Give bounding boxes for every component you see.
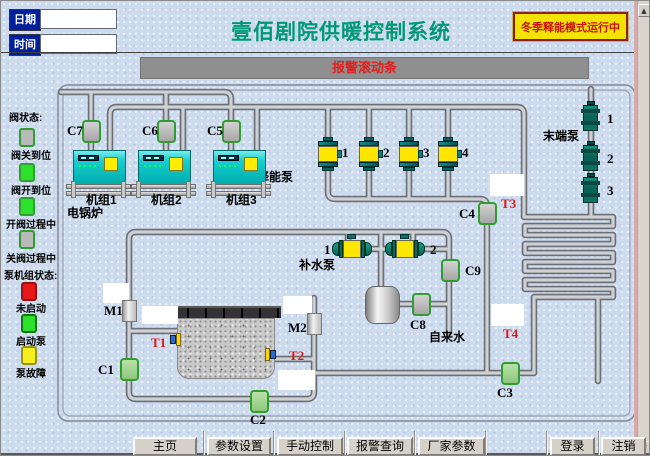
unit-display-tick [154,157,159,159]
makeup-pump-1[interactable] [343,240,361,258]
footer-divider [203,431,205,456]
unit-lamp-1 [104,157,118,171]
valve-C1[interactable] [120,358,139,381]
sensor-tip [265,348,270,361]
footer-divider [485,431,487,456]
legend-valve-state-label-1: 阀关到位 [1,147,61,162]
unit-indicator-dot [144,165,146,167]
legend-pump-state-label-1: 未启动 [1,300,61,315]
legend-valve-state-label-2: 阀开到位 [1,182,61,197]
value-display-box-4 [278,370,315,390]
end-pump-band [581,193,600,197]
nav-button-home[interactable]: 主页 [133,437,197,456]
date-label: 日期 [9,9,41,31]
unit-indicator-dot [154,165,156,167]
unit-base-tab [186,181,191,198]
end-pump-number: 2 [607,152,614,165]
legend-valve-title: 阀状态: [9,109,42,124]
valve-C5[interactable] [222,120,241,143]
end-pump-band [581,109,600,113]
release-pump-cap [403,167,415,171]
tap-water-label: 自来水 [429,331,465,343]
sensor-tip [176,333,181,346]
unit-label-2: 机组2 [151,194,182,206]
boiler-unit-2[interactable] [138,150,191,185]
release-pump-number: 4 [462,146,469,159]
boiler-unit-1[interactable] [73,150,126,185]
unit-indicator-dot [234,165,236,167]
valve-label-C9: C9 [465,264,481,277]
release-pump-number: 2 [383,146,390,159]
nav-button-parameters[interactable]: 参数设置 [207,437,271,456]
unit-indicator-dot [229,165,231,167]
makeup-pump-number: 2 [430,243,437,256]
unit-base-tab [136,181,141,198]
end-pump-band [581,149,600,153]
unit-label-1: 机组1 [86,194,117,206]
makeup-pump-2[interactable] [396,240,414,258]
valve-label-C4: C4 [459,207,475,220]
temp-sensor-T1 [170,333,181,346]
legend-valve-state-label-3: 开阀过程中 [1,216,61,231]
legend-valve-state-swatch-2 [19,163,35,182]
legend-pump-state-label-3: 泵故障 [1,365,61,380]
makeup-pumps-label: 补水泵 [299,259,335,271]
makeup-pump-nub [347,234,356,239]
unit-indicator-dot [79,165,81,167]
end-pump-band [581,121,600,125]
unit-display-1 [78,155,99,161]
release-pump-cap [442,167,454,171]
temp-label-T2: T2 [289,349,304,362]
boiler-unit-3[interactable] [213,150,266,185]
makeup-pump-cap [332,242,339,256]
scrollbar-up-icon[interactable]: ▲ [638,4,650,17]
legend-valve-state-label-4: 关阀过程中 [1,250,61,265]
unit-lamp-3 [244,157,258,171]
valve-C7[interactable] [82,120,101,143]
value-display-box-3 [283,296,312,314]
unit-indicator-dot [94,165,96,167]
time-input[interactable] [40,34,117,54]
legend-pump-state-swatch-2 [21,314,37,333]
unit-display-3 [218,155,239,161]
unit-base-tab [121,181,126,198]
unit-display-tick [81,157,86,159]
legend-pump-state-swatch-3 [21,346,37,365]
end-pumps-label: 末端泵 [543,130,579,142]
release-pump-3[interactable] [399,146,419,162]
unit-indicator-dot [224,165,226,167]
temp-label-T3: T3 [501,197,516,210]
value-display-box-5 [490,174,524,196]
release-pump-number: 3 [423,146,430,159]
temp-label-T1: T1 [151,336,166,349]
valve-label-C1: C1 [98,363,114,376]
end-pump-band [581,161,600,165]
footer-divider [344,431,346,456]
boiler-group-label: 电锅炉 [67,207,103,219]
unit-base-tab [261,181,266,198]
unit-lamp-2 [169,157,183,171]
storage-tank-lid [171,306,281,318]
flow-meter-label-M1: M1 [104,304,123,317]
logout-button[interactable]: 注销 [601,437,646,456]
value-display-box-6 [491,304,524,326]
hmi-window: 日期 时间 壹佰剧院供暖控制系统 冬季释能模式运行中 报警滚动条 阀状态: 泵机… [0,0,650,456]
end-pump-number: 3 [607,184,614,197]
storage-tank [177,318,275,379]
valve-label-C7: C7 [67,124,83,137]
footer-divider [273,431,275,456]
legend-pump-state-swatch-1 [21,282,37,301]
valve-label-C2: C2 [250,413,266,426]
flow-meter-M1[interactable] [122,300,137,322]
header-separator [1,52,650,53]
release-pump-cap [363,167,375,171]
flow-meter-M2[interactable] [307,313,322,335]
unit-indicator-dot [219,165,221,167]
valve-label-C5: C5 [207,124,223,137]
unit-base-tab [71,181,76,198]
valve-label-C8: C8 [410,318,426,331]
date-input[interactable] [40,9,117,29]
valve-C3[interactable] [501,362,520,385]
unit-display-tick [146,157,151,159]
unit-display-tick [229,157,234,159]
release-pump-1[interactable] [318,146,338,162]
valve-label-C6: C6 [142,124,158,137]
legend-valve-state-swatch-1 [19,128,35,147]
unit-indicator-dot [149,165,151,167]
flow-meter-label-M2: M2 [288,321,307,334]
legend-valve-state-swatch-4 [19,230,35,249]
unit-display-tick [221,157,226,159]
nav-button-factory-params[interactable]: 厂家参数 [418,437,485,456]
page-title: 壹佰剧院供暖控制系统 [226,16,456,46]
makeup-pump-cap [385,242,392,256]
sensor-body [270,350,276,359]
makeup-pump-nub [400,234,409,239]
unit-label-3: 机组3 [226,194,257,206]
unit-indicator-dot [159,165,161,167]
mode-status-button[interactable]: 冬季释能模式运行中 [513,12,628,41]
unit-base-tab [211,181,216,198]
makeup-water-tank [365,286,400,324]
unit-display-2 [143,155,164,161]
footer-divider [598,431,600,456]
temp-label-T4: T4 [503,327,518,340]
footer-divider [414,431,416,456]
legend-valve-state-swatch-3 [19,197,35,216]
release-pump-4[interactable] [438,146,458,162]
nav-button-manual-control[interactable]: 手动控制 [277,437,343,456]
release-pump-number: 1 [342,146,349,159]
valve-label-C3: C3 [497,386,513,399]
valve-C8[interactable] [412,293,431,316]
legend-pump-title: 泵机组状态: [4,267,57,282]
temp-sensor-T2 [265,348,276,361]
valve-C6[interactable] [157,120,176,143]
value-display-box-2 [142,306,178,324]
alarm-scroll-bar: 报警滚动条 [140,57,589,79]
end-pump-number: 1 [607,112,614,125]
release-pump-2[interactable] [359,146,379,162]
unit-indicator-dot [84,165,86,167]
makeup-pump-number: 1 [324,243,331,256]
scrollbar-track[interactable] [637,1,650,456]
valve-C2[interactable] [250,390,269,413]
footer-divider [546,431,548,456]
valve-C4[interactable] [478,202,497,225]
nav-button-alarm-query[interactable]: 报警查询 [347,437,413,456]
release-pump-cap [322,167,334,171]
end-pump-band [581,181,600,185]
login-button[interactable]: 登录 [550,437,595,456]
valve-C9[interactable] [441,259,460,282]
unit-indicator-dot [89,165,91,167]
unit-display-tick [89,157,94,159]
